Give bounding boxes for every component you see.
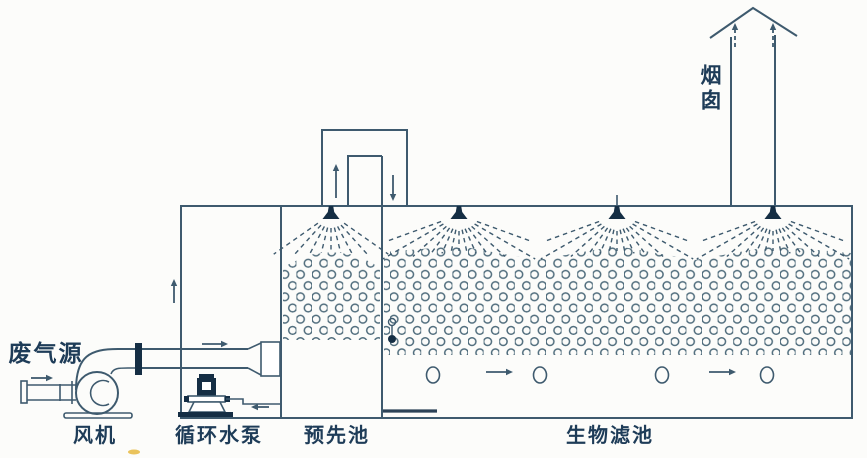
air-bubble	[656, 367, 669, 383]
arrow-left-wall-up	[171, 279, 177, 303]
diagram-svg	[0, 0, 867, 458]
arrow-duct-up	[333, 164, 339, 198]
label-circulating-pump: 循环水泵	[166, 426, 272, 447]
air-bubbles	[427, 367, 774, 383]
label-fan: 风机	[63, 426, 127, 447]
arrow-plenum-right-1	[486, 369, 513, 375]
pump-base	[178, 412, 233, 417]
fan-base	[64, 413, 132, 418]
gas-diffuser	[261, 342, 280, 376]
label-pre-tank: 预先池	[298, 426, 376, 447]
air-bubble	[427, 367, 440, 383]
pre-tank-media	[283, 252, 380, 340]
arrow-duct-down	[390, 175, 396, 201]
label-waste-gas-source: 废气源	[6, 342, 86, 366]
arrow-inlet-right	[31, 375, 53, 381]
label-biofilter: 生物滤池	[562, 426, 658, 447]
return-pipe	[226, 399, 281, 404]
main-gas-pipe	[142, 342, 280, 376]
pump-icon	[178, 374, 233, 417]
chimney	[710, 8, 797, 207]
waste-gas-inlet	[21, 381, 76, 404]
process-diagram: 废气源 风机 循环水泵 预先池 生物滤池 烟囱	[0, 0, 867, 458]
yellow-speck	[128, 450, 140, 455]
air-bubble	[534, 367, 547, 383]
packing-media	[283, 246, 851, 355]
arrow-main-pipe-right	[202, 341, 228, 347]
chimney-cap	[710, 8, 797, 38]
spray-nozzle	[274, 206, 389, 256]
pipe-flange	[135, 343, 142, 375]
arrow-chimney-up-left	[732, 23, 738, 47]
arrow-plenum-right-2	[709, 369, 736, 375]
air-bubble	[761, 367, 774, 383]
inlet-flange	[21, 381, 27, 403]
label-chimney: 烟囱	[699, 56, 721, 122]
biofilter-media	[384, 246, 851, 355]
